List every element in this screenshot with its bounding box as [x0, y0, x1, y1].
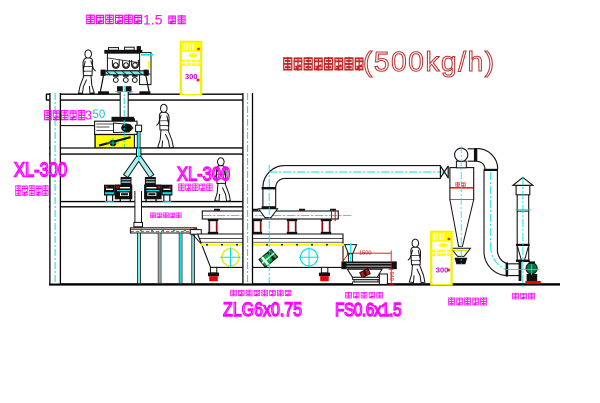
svg-text:ZLG6x0.75: ZLG6x0.75 [223, 299, 302, 321]
svg-text:3: 3 [85, 109, 92, 123]
svg-text:XL-300: XL-300 [14, 158, 67, 181]
svg-text:300: 300 [436, 266, 449, 275]
svg-text:XL-300: XL-300 [177, 163, 230, 185]
svg-text:300: 300 [185, 72, 198, 81]
svg-text:1.5: 1.5 [143, 12, 163, 28]
svg-text:50: 50 [93, 109, 106, 121]
svg-text:1500: 1500 [359, 250, 371, 256]
svg-text:(500kg/h): (500kg/h) [363, 46, 496, 77]
svg-text:FS0.6x1.5: FS0.6x1.5 [335, 300, 401, 321]
svg-text:540: 540 [388, 272, 394, 281]
